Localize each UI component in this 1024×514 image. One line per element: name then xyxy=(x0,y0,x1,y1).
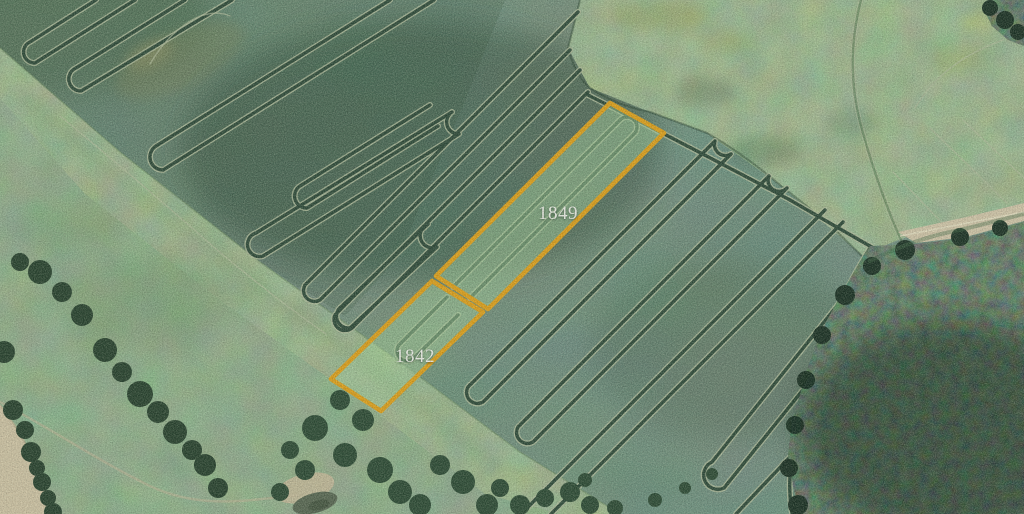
photo-grain xyxy=(0,0,1024,514)
aerial-map-canvas[interactable]: 1849 1842 xyxy=(0,0,1024,514)
map-viewport[interactable]: 1849 1842 xyxy=(0,0,1024,514)
